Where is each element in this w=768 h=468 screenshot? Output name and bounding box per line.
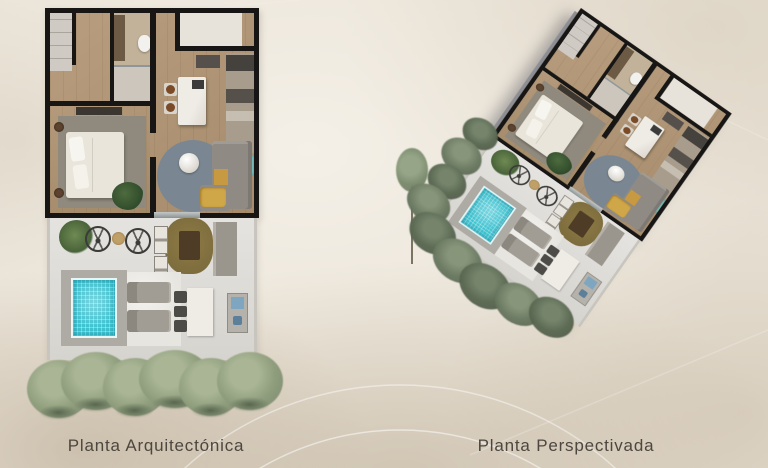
presentation-canvas: { "captions": { "left": "Planta Arquitec… — [0, 0, 768, 468]
fridge — [226, 55, 254, 71]
sphere-lamp — [179, 153, 199, 173]
outdoor-kitchen — [227, 293, 248, 333]
sun-lounger — [127, 310, 171, 332]
wall — [175, 46, 254, 51]
bedroom — [50, 106, 150, 213]
entry-alcove — [180, 13, 242, 46]
architectural-plan — [45, 8, 259, 426]
wall — [72, 13, 76, 65]
plant — [112, 182, 144, 210]
terrace — [47, 218, 257, 360]
hanging-chair — [85, 226, 111, 252]
tv-console — [76, 107, 122, 115]
lounge-chair — [154, 226, 168, 254]
kitchen-counter — [226, 53, 254, 153]
garden-bushes — [27, 346, 283, 434]
floorplan — [45, 8, 259, 360]
sun-lounger — [127, 282, 171, 303]
outdoor-kitchen — [570, 272, 602, 307]
bathroom-vanity — [114, 15, 125, 61]
unit-interior — [45, 8, 259, 218]
outdoor-bench — [213, 222, 237, 276]
dining-chair — [174, 291, 187, 303]
door-mat — [196, 55, 220, 68]
ottoman — [200, 187, 226, 207]
kitchen-island — [178, 77, 206, 125]
side-table — [112, 232, 125, 245]
wall — [175, 13, 180, 46]
caption-architectural: Planta Arquitectónica — [26, 436, 286, 456]
nightstand — [54, 188, 64, 198]
wall — [150, 13, 156, 133]
wall — [150, 157, 156, 213]
bush — [217, 352, 283, 410]
dining-chair — [174, 306, 187, 317]
closet — [50, 13, 72, 71]
dining-table — [187, 288, 213, 336]
caption-perspective: Planta Perspectivada — [436, 436, 696, 456]
nightstand — [54, 122, 64, 132]
bar-stool — [164, 101, 177, 114]
stove — [226, 89, 254, 103]
perspective-plan-slot — [431, 8, 732, 328]
bar-stool — [164, 83, 177, 96]
dining-chair — [174, 320, 187, 332]
pool — [71, 278, 117, 338]
perspective-plan — [398, 0, 768, 460]
throw-blanket — [214, 169, 228, 185]
hanging-chair — [125, 228, 151, 254]
kitchen-sink — [226, 111, 254, 121]
daybed — [165, 218, 213, 274]
